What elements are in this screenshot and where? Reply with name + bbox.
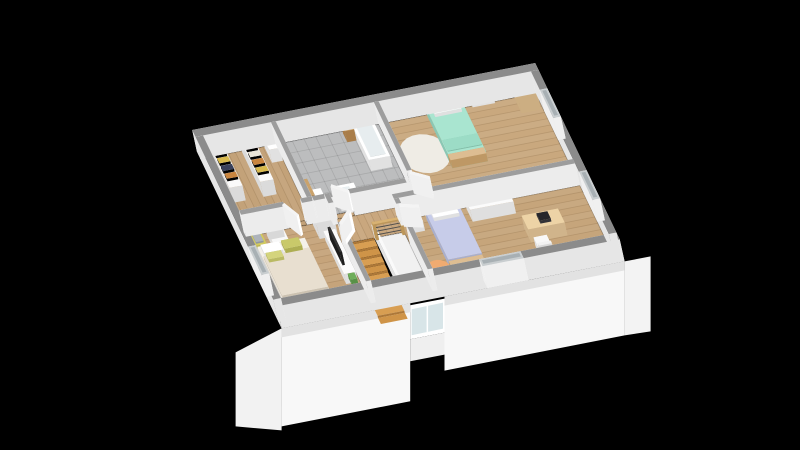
lower-wall-left-return xyxy=(236,328,282,430)
lower-wall-right-return xyxy=(625,256,651,335)
floorplan-scene xyxy=(0,0,800,450)
floorplan-3d-render xyxy=(0,0,800,450)
